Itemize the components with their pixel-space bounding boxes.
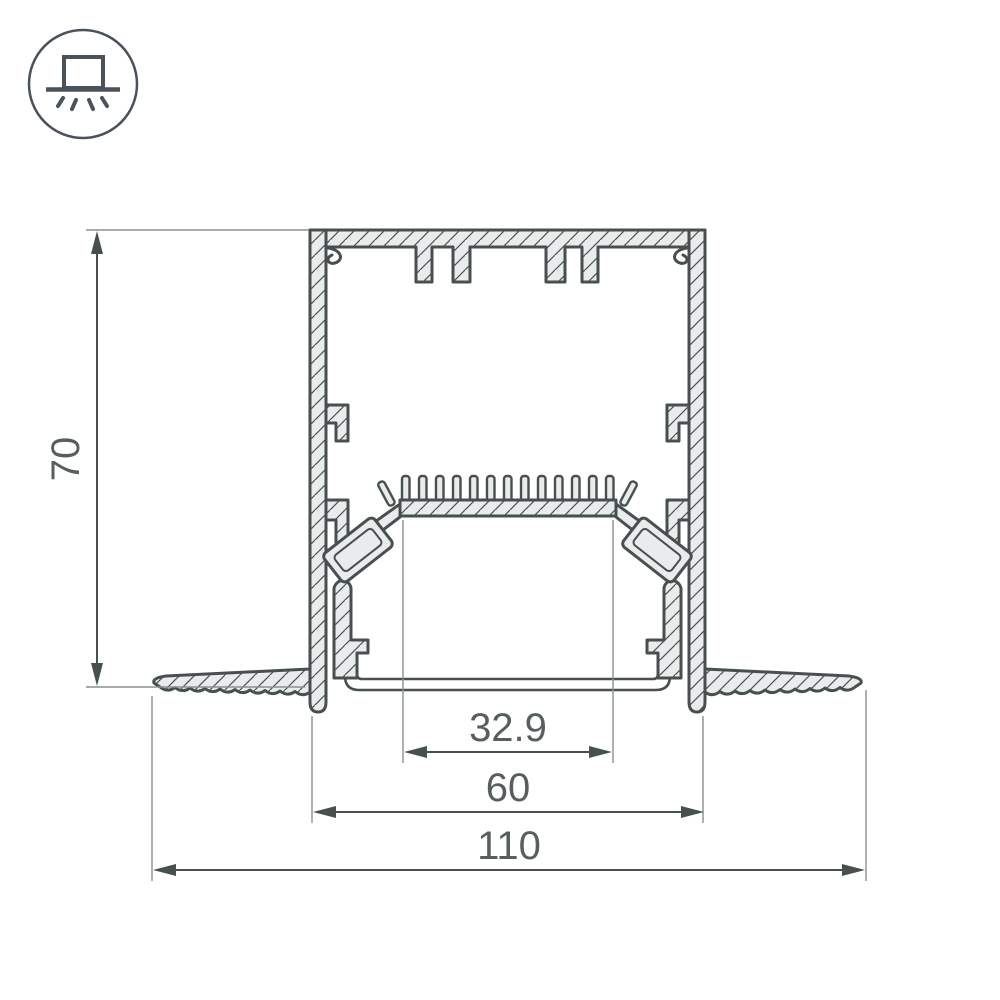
arrowhead-right — [681, 806, 704, 818]
dimension-led-area: 32.9 — [403, 520, 613, 763]
ceiling-flange-left — [154, 669, 310, 695]
dim-label-32.9: 32.9 — [469, 706, 547, 750]
wall-hook-left-upper — [326, 405, 348, 441]
dim-label-60: 60 — [486, 766, 531, 810]
profile-body — [154, 230, 862, 712]
corner-curl-left — [328, 248, 340, 263]
drawing-canvas: 70 32.9 60 110 — [0, 0, 1000, 1000]
recessed-light-icon — [29, 30, 137, 138]
icon-circle — [29, 30, 137, 138]
dim-label-110: 110 — [477, 824, 541, 868]
heatsink-fin — [377, 480, 395, 506]
arrowhead-up — [91, 231, 103, 254]
trim-left — [334, 581, 368, 679]
dim-label-70: 70 — [44, 437, 88, 482]
dimensions: 70 32.9 60 110 — [44, 230, 866, 881]
ceiling-flange-right — [705, 669, 861, 695]
corner-curl-right — [675, 248, 687, 263]
heatsink — [377, 476, 638, 516]
arrowhead-left — [153, 864, 176, 876]
top-wall — [310, 230, 705, 282]
arrowhead-right — [842, 864, 865, 876]
left-wall — [310, 230, 326, 712]
profile-cross-section-drawing: 70 32.9 60 110 — [0, 0, 1000, 1000]
right-wall — [689, 230, 705, 712]
dimension-height: 70 — [44, 230, 309, 687]
arrowhead-right — [589, 746, 612, 758]
heatsink-plate — [400, 500, 616, 516]
arrowhead-left — [313, 806, 336, 818]
icon-lamp-box — [64, 57, 103, 88]
icon-light-rays — [58, 98, 107, 109]
arrowhead-left — [404, 746, 427, 758]
diffuser — [345, 658, 670, 690]
wall-hook-right-upper — [667, 405, 689, 441]
arrowhead-down — [91, 663, 103, 686]
heatsink-fin — [619, 480, 637, 506]
trim-right — [647, 581, 681, 679]
